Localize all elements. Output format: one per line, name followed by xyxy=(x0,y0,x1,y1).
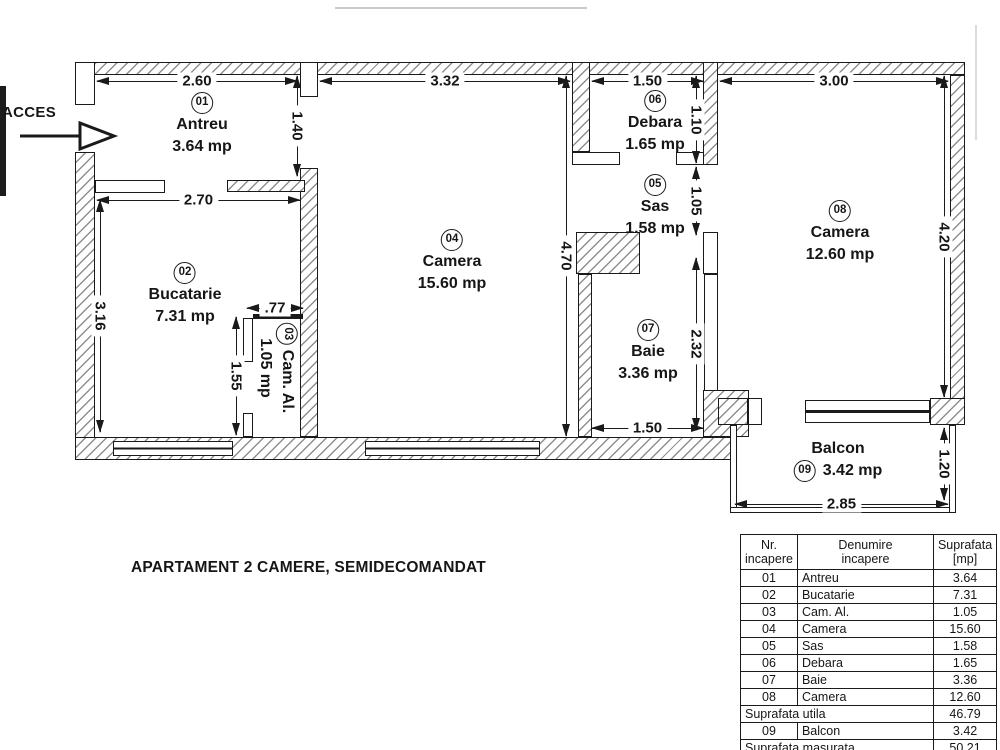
dim-arrow xyxy=(562,75,570,88)
cell-nr: 07 xyxy=(741,672,798,689)
dimension-bucatarie-w: 2.70 xyxy=(97,200,300,201)
debara-left-wall xyxy=(572,62,590,152)
room-number-badge: 04 xyxy=(441,229,463,251)
dimension-camera4-h: 4.70 xyxy=(566,76,567,436)
dimension-debara-h: 1.10 xyxy=(696,76,697,163)
dim-label: 1.40 xyxy=(289,105,306,146)
room-number-badge: 09 xyxy=(794,460,816,482)
dim-label: 2.32 xyxy=(688,323,705,364)
dimension-cam-al-w: .77 xyxy=(247,308,303,309)
cell-area: 1.05 xyxy=(933,604,996,621)
antreu-bucatarie-wall-right xyxy=(227,180,305,192)
dim-arrow xyxy=(692,166,700,179)
cell-nr: 02 xyxy=(741,587,798,604)
dimension-baie-w: 1.50 xyxy=(592,428,703,429)
dim-arrow xyxy=(288,196,301,204)
cell-area: 15.60 xyxy=(933,621,996,638)
dim-label: 1.05 xyxy=(688,180,705,221)
cell-name: Debara xyxy=(797,655,933,672)
cell-nr: 03 xyxy=(741,604,798,621)
dim-arrow xyxy=(692,151,700,164)
antreu-right-jamb xyxy=(300,62,318,97)
room-label-debara: 06Debara1.65 mp xyxy=(625,90,685,155)
floorplan-canvas: 2.603.321.503.002.70.771.502.851.403.161… xyxy=(0,0,1000,750)
room-label-camera8: 08Camera12.60 mp xyxy=(806,200,874,265)
dim-arrow xyxy=(293,75,301,88)
cell-name: Camera xyxy=(797,689,933,706)
dim-label: 1.10 xyxy=(688,99,705,140)
dim-arrow xyxy=(692,257,700,270)
baie-right-wall xyxy=(704,274,718,400)
acces-label: ACCES xyxy=(2,104,56,121)
cell-nr: 09 xyxy=(741,723,798,740)
table-row: 07Baie3.36 xyxy=(741,672,997,689)
table-row: 02Bucatarie7.31 xyxy=(741,587,997,604)
scan-line-top xyxy=(335,7,587,9)
room-number-badge: 08 xyxy=(829,200,851,222)
room-label-balcon: Balcon093.42 mp xyxy=(794,438,883,482)
room-number-badge: 02 xyxy=(174,262,196,284)
cell-name: Baie xyxy=(797,672,933,689)
dim-arrow xyxy=(246,304,259,312)
dim-label: 3.16 xyxy=(92,295,109,336)
dim-arrow xyxy=(232,316,240,329)
dim-arrow xyxy=(96,420,104,433)
dimension-camera4-w: 3.32 xyxy=(320,81,570,82)
cell-area: 1.58 xyxy=(933,638,996,655)
dim-label: 1.50 xyxy=(628,420,667,437)
dim-arrow xyxy=(936,500,949,508)
dimension-cam-al-h: 1.55 xyxy=(236,317,237,435)
room-name: Bucatarie xyxy=(149,284,222,306)
dim-arrow xyxy=(293,164,301,177)
dim-label: .77 xyxy=(260,300,291,317)
cell-nr: 01 xyxy=(741,570,798,587)
summary-label: Suprafata utila xyxy=(741,706,934,723)
room-label-antreu: 01Antreu3.64 mp xyxy=(172,92,232,157)
room-name: Baie xyxy=(618,341,678,363)
table-row: 05Sas1.58 xyxy=(741,638,997,655)
dim-label: 2.70 xyxy=(179,192,218,209)
room-name: Cam. Al. xyxy=(276,350,298,413)
cell-nr: 08 xyxy=(741,689,798,706)
dimension-baie-h: 2.32 xyxy=(696,258,697,430)
room-label-camera4: 04Camera15.60 mp xyxy=(418,229,486,294)
room-label-sas: 05Sas1.58 mp xyxy=(625,174,685,239)
dim-arrow xyxy=(291,304,304,312)
room-name: Camera xyxy=(418,251,486,273)
room-area: 15.60 mp xyxy=(418,273,486,295)
cell-name: Cam. Al. xyxy=(797,604,933,621)
baie-left-wall xyxy=(578,274,592,437)
room-name: Sas xyxy=(625,196,685,218)
summary-value: 50.21 xyxy=(933,740,996,750)
dim-arrow xyxy=(232,423,240,436)
dimension-balcon-h: 1.20 xyxy=(944,428,945,500)
dimension-camera8-h: 4.20 xyxy=(944,76,945,397)
room-number-badge: 01 xyxy=(191,92,213,114)
room-area: 7.31 mp xyxy=(149,306,222,328)
dim-arrow xyxy=(96,199,104,212)
dim-arrow xyxy=(319,77,332,85)
dim-label: 2.85 xyxy=(822,496,861,513)
dim-label: 1.55 xyxy=(228,355,245,396)
table-summary-row: Suprafata masurata50.21 xyxy=(741,740,997,750)
camera8-balcon-window xyxy=(805,400,930,423)
debara-bottom-wall-left xyxy=(572,152,620,165)
balcony-door-jamb xyxy=(748,398,762,425)
room-area: 1.05 mp xyxy=(254,323,276,413)
room-area: 3.42 mp xyxy=(823,460,883,482)
dim-label: 4.70 xyxy=(558,235,575,276)
dimension-bucatarie-h: 3.16 xyxy=(100,200,101,432)
table-header-row: Nr.incapere Denumireincapere Suprafata[m… xyxy=(741,535,997,570)
cell-nr: 06 xyxy=(741,655,798,672)
room-number-badge: 05 xyxy=(644,174,666,196)
left-wall-top xyxy=(75,62,95,105)
cam-al-left-wall-bottom xyxy=(243,413,253,437)
cell-name: Bucatarie xyxy=(797,587,933,604)
dim-arrow xyxy=(692,418,700,431)
room-area: 1.65 mp xyxy=(625,134,685,156)
dimension-camera8-w: 3.00 xyxy=(720,81,948,82)
dim-arrow xyxy=(940,488,948,501)
table-row: 08Camera12.60 xyxy=(741,689,997,706)
dim-arrow xyxy=(719,77,732,85)
bucatarie-camera-wall xyxy=(300,168,318,437)
acces-entrance: ACCES xyxy=(2,104,120,152)
cell-area: 7.31 xyxy=(933,587,996,604)
dimension-antreu-w: 2.60 xyxy=(97,81,297,82)
debara-camera8-wall xyxy=(703,62,718,165)
dim-arrow xyxy=(96,77,109,85)
area-table: Nr.incapere Denumireincapere Suprafata[m… xyxy=(740,534,997,750)
cell-area: 3.42 xyxy=(933,723,996,740)
dimension-balcon-w: 2.85 xyxy=(735,504,948,505)
dim-arrow xyxy=(734,500,747,508)
room-name: Antreu xyxy=(172,114,232,136)
dim-label: 3.00 xyxy=(814,73,853,90)
room-area: 12.60 mp xyxy=(806,244,874,266)
dim-arrow xyxy=(940,385,948,398)
cell-area: 12.60 xyxy=(933,689,996,706)
dim-arrow xyxy=(591,424,604,432)
cell-name: Balcon xyxy=(797,723,933,740)
room-area: 3.64 mp xyxy=(172,136,232,158)
dimension-sas-h: 1.05 xyxy=(696,167,697,235)
cell-name: Sas xyxy=(797,638,933,655)
sas-baie-wall-stub xyxy=(703,232,718,274)
dimension-antreu-h: 1.40 xyxy=(297,76,298,176)
room-name: Camera xyxy=(806,222,874,244)
scan-line-right xyxy=(975,25,977,140)
header-nr-incapere: Nr.incapere xyxy=(741,535,798,570)
dimension-debara-w: 1.50 xyxy=(592,81,703,82)
antreu-bucatarie-wall-left xyxy=(95,180,165,193)
table-row: 06Debara1.65 xyxy=(741,655,997,672)
cell-nr: 05 xyxy=(741,638,798,655)
dim-arrow xyxy=(940,427,948,440)
header-suprafata-mp: Suprafata[mp] xyxy=(933,535,996,570)
bucatarie-window xyxy=(113,441,233,456)
camera8-bottom-wall-right xyxy=(930,398,965,425)
room-number-badge: 03 xyxy=(276,323,298,345)
room-number-badge: 07 xyxy=(637,319,659,341)
table-summary-row: Suprafata utila46.79 xyxy=(741,706,997,723)
room-area: 3.36 mp xyxy=(618,363,678,385)
camera8-bottom-wall-left xyxy=(718,398,748,425)
table-row: 04Camera15.60 xyxy=(741,621,997,638)
dim-label: 2.60 xyxy=(177,73,216,90)
room-name: Debara xyxy=(625,112,685,134)
cell-area: 3.36 xyxy=(933,672,996,689)
header-denumire-incapere: Denumireincapere xyxy=(797,535,933,570)
room-label-baie: 07Baie3.36 mp xyxy=(618,319,678,384)
room-name: Balcon xyxy=(794,438,883,460)
room-label-cam-al: 03Cam. Al.1.05 mp xyxy=(254,323,298,413)
dim-label: 3.32 xyxy=(425,73,464,90)
summary-value: 46.79 xyxy=(933,706,996,723)
dim-arrow xyxy=(692,223,700,236)
plan-title: APARTAMENT 2 CAMERE, SEMIDECOMANDAT xyxy=(131,559,486,577)
room-area: 1.58 mp xyxy=(625,218,685,240)
dim-arrow xyxy=(591,77,604,85)
dim-label: 1.20 xyxy=(936,443,953,484)
table-row: 03Cam. Al.1.05 xyxy=(741,604,997,621)
summary-label: Suprafata masurata xyxy=(741,740,934,750)
room-number-badge: 06 xyxy=(644,90,666,112)
table-row: 01Antreu3.64 xyxy=(741,570,997,587)
cell-name: Camera xyxy=(797,621,933,638)
cell-name: Antreu xyxy=(797,570,933,587)
dim-arrow xyxy=(562,424,570,437)
cam-al-left-wall-top xyxy=(243,318,253,362)
cell-area: 3.64 xyxy=(933,570,996,587)
table-row: 09Balcon3.42 xyxy=(741,723,997,740)
cell-area: 1.65 xyxy=(933,655,996,672)
cell-nr: 04 xyxy=(741,621,798,638)
acces-arrow-icon xyxy=(20,120,120,152)
dim-label: 4.20 xyxy=(936,216,953,257)
dim-label: 1.50 xyxy=(628,73,667,90)
dim-arrow xyxy=(692,75,700,88)
camera4-window xyxy=(365,441,540,456)
dim-arrow xyxy=(940,75,948,88)
room-label-bucatarie: 02Bucatarie7.31 mp xyxy=(149,262,222,327)
